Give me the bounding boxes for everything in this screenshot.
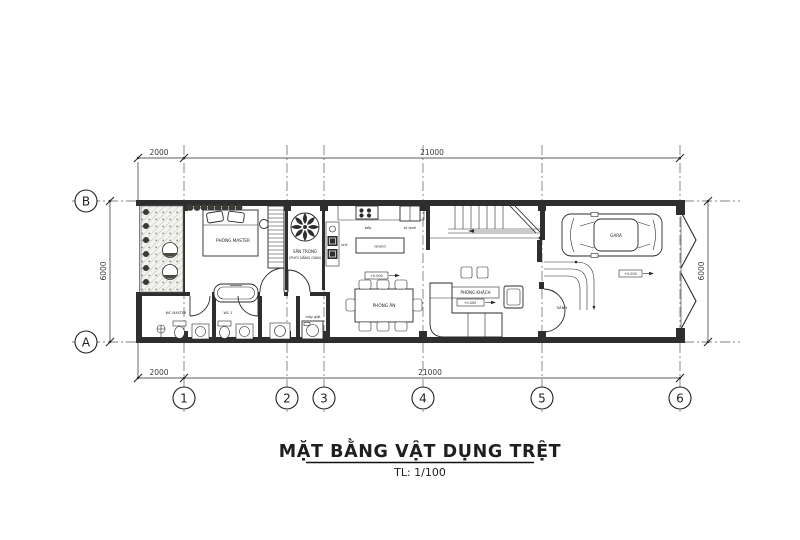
grid-bubble-6: 6	[669, 387, 691, 409]
dim-right-height: 6000	[697, 261, 706, 280]
fridge	[400, 206, 420, 221]
sink-icon	[236, 324, 253, 339]
car-icon: GARA	[562, 213, 662, 258]
label-fridge: tủ lạnh	[404, 226, 417, 230]
svg-text:+0.000: +0.000	[370, 274, 383, 278]
grid-bubble-4: 4	[412, 387, 434, 409]
svg-text:6: 6	[676, 392, 684, 406]
bedroom-door	[260, 268, 284, 292]
wc-master-door	[190, 296, 210, 316]
grid-bubble-1: 1	[173, 387, 195, 409]
label-sink: sink	[341, 243, 348, 247]
pouf	[477, 267, 488, 278]
svg-text:B: B	[82, 195, 90, 209]
floor-plan-canvas: 2000 21000 2000 21000 6000 6000	[0, 0, 800, 540]
sink-icon	[192, 324, 209, 339]
utility-basin	[270, 323, 290, 339]
entry-steps	[544, 261, 595, 310]
entry-hall: SẢNH	[544, 261, 595, 332]
svg-text:+0.000: +0.000	[464, 301, 477, 305]
living-room: PHÒNG KHÁCH +0.000	[430, 267, 523, 337]
kitchen-cabinet	[326, 222, 339, 266]
stove-icon	[356, 206, 378, 219]
master-bedroom: PHÒNG MASTER	[203, 206, 284, 302]
title-block: MẶT BẰNG VẬT DỤNG TRỆT TL: 1/100	[279, 438, 561, 479]
bathtub	[214, 284, 258, 302]
pouf	[461, 267, 472, 278]
svg-text:2: 2	[283, 392, 291, 406]
kitchen: bếp tủ lạnh sink island	[326, 206, 424, 266]
dim-bottom-left: 2000	[149, 368, 168, 377]
svg-text:1: 1	[180, 392, 188, 406]
scale-label: TL: 1/100	[393, 466, 446, 479]
label-island: island	[374, 244, 386, 249]
wardrobe	[268, 206, 284, 268]
bottom-wall	[136, 337, 684, 343]
garage: GARA +0.000	[562, 212, 696, 329]
room-label-courtyard-2: (PHƠI NẮNG GIAN)	[289, 255, 322, 260]
pillow	[206, 211, 223, 223]
svg-text:+0.000: +0.000	[624, 272, 637, 276]
dimensions: 2000 21000 2000 21000 6000 6000	[99, 148, 712, 382]
label-laundry: máy giặt	[306, 315, 322, 319]
gate-zigzag-icon	[681, 212, 696, 329]
stairs	[430, 206, 542, 239]
washer-icon	[302, 321, 323, 339]
room-label-dining: PHÒNG ĂN	[373, 303, 396, 308]
level-marker-garage: +0.000	[619, 270, 654, 277]
dim-top-left: 2000	[149, 148, 168, 157]
pillow	[227, 211, 244, 223]
room-label-courtyard-1: SÂN TRONG	[293, 249, 317, 254]
room-label-wc-master: WC MASTER	[166, 311, 187, 315]
courtyard-door	[288, 270, 310, 292]
toilet-icon	[218, 321, 231, 339]
dim-top-main: 21000	[420, 148, 444, 157]
grid-bubble-2: 2	[276, 387, 298, 409]
left-wall	[136, 292, 142, 337]
svg-text:3: 3	[320, 392, 328, 406]
svg-text:A: A	[82, 336, 91, 350]
grid-bubble-B: B	[75, 190, 97, 212]
page-title: MẶT BẰNG VẬT DỤNG TRỆT	[279, 438, 561, 462]
courtyard-fan-icon	[291, 213, 319, 241]
room-label-master: PHÒNG MASTER	[216, 238, 250, 243]
living-label-box: PHÒNG KHÁCH +0.000	[452, 287, 499, 306]
svg-text:4: 4	[419, 392, 427, 406]
label-stove: bếp	[365, 226, 372, 230]
dining-room: +0.000 PHÒNG ĂN	[346, 272, 422, 331]
grid-bubble-A: A	[75, 331, 97, 353]
svg-text:5: 5	[538, 392, 546, 406]
level-marker-dining: +0.000	[365, 272, 400, 279]
floor-plan-page: 2000 21000 2000 21000 6000 6000	[0, 0, 800, 540]
armchair	[504, 286, 523, 308]
double-door	[544, 289, 565, 332]
dim-left-height: 6000	[99, 261, 108, 280]
label-garage-car: GARA	[610, 233, 622, 238]
grid-bubble-3: 3	[313, 387, 335, 409]
dim-bottom-main: 21000	[418, 368, 442, 377]
grid-bubble-5: 5	[531, 387, 553, 409]
courtyard: SÂN TRONG (PHƠI NẮNG GIAN)	[288, 213, 322, 292]
room-label-hall: SẢNH	[557, 305, 568, 310]
nightstand	[260, 220, 269, 229]
room-label-wc1: WC 1	[224, 311, 233, 315]
room-label-living: PHÒNG KHÁCH	[460, 290, 490, 295]
